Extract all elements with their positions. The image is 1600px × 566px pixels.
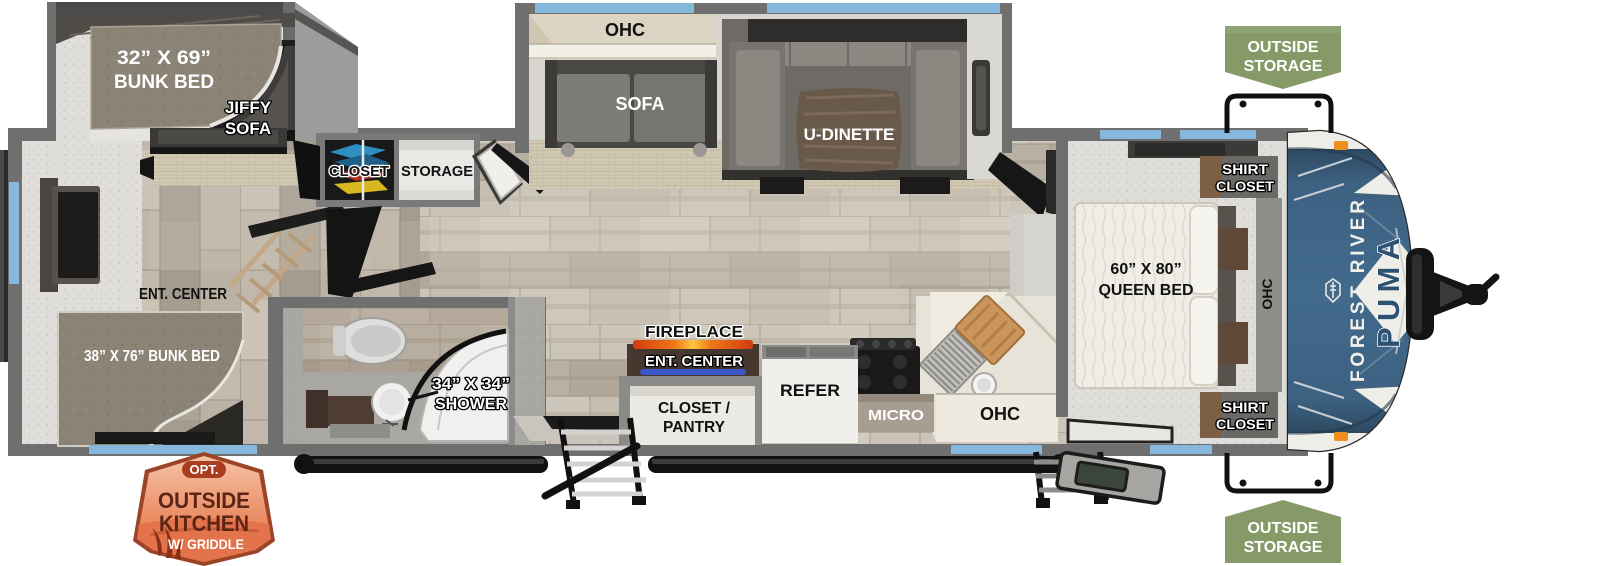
svg-text:REFER: REFER — [780, 381, 840, 400]
svg-text:OUTSIDE: OUTSIDE — [1247, 520, 1318, 537]
svg-text:OHC: OHC — [1259, 278, 1275, 309]
svg-text:FOREST RIVER: FOREST RIVER — [1348, 200, 1369, 382]
svg-text:CLOSET: CLOSET — [1216, 178, 1274, 194]
svg-text:QUEEN BED: QUEEN BED — [1098, 282, 1193, 299]
svg-text:KITCHEN: KITCHEN — [159, 511, 249, 536]
svg-text:STORAGE: STORAGE — [1244, 58, 1323, 75]
svg-text:OPT.: OPT. — [190, 462, 219, 477]
svg-text:BUNK BED: BUNK BED — [114, 72, 214, 93]
svg-text:60” X 80”: 60” X 80” — [1110, 261, 1181, 278]
svg-text:OUTSIDE: OUTSIDE — [158, 488, 250, 513]
svg-text:OHC: OHC — [605, 20, 645, 40]
svg-text:ENT. CENTER: ENT. CENTER — [139, 286, 227, 303]
svg-text:SHOWER: SHOWER — [435, 396, 507, 413]
svg-text:SHIRT: SHIRT — [1222, 161, 1268, 177]
svg-text:W/ GRIDDLE: W/ GRIDDLE — [168, 536, 244, 552]
svg-text:STORAGE: STORAGE — [1244, 539, 1323, 556]
svg-text:PANTRY: PANTRY — [663, 419, 725, 436]
svg-text:CLOSET: CLOSET — [1216, 416, 1274, 432]
svg-text:SOFA: SOFA — [615, 94, 664, 114]
svg-text:38” X 76” BUNK BED: 38” X 76” BUNK BED — [84, 348, 220, 365]
svg-text:MICRO: MICRO — [868, 407, 924, 424]
svg-text:SHIRT: SHIRT — [1222, 399, 1268, 415]
svg-text:PUMA: PUMA — [1371, 238, 1406, 348]
svg-text:JIFFY: JIFFY — [225, 98, 272, 117]
svg-text:CLOSET: CLOSET — [329, 163, 389, 180]
svg-text:34” X 34”: 34” X 34” — [432, 376, 510, 393]
svg-text:OHC: OHC — [980, 404, 1020, 424]
svg-text:OUTSIDE: OUTSIDE — [1247, 39, 1318, 56]
svg-text:FIREPLACE: FIREPLACE — [645, 324, 743, 341]
svg-text:32” X 69”: 32” X 69” — [117, 48, 211, 69]
svg-text:U-DINETTE: U-DINETTE — [804, 125, 895, 144]
svg-text:SOFA: SOFA — [225, 119, 271, 138]
svg-text:STORAGE: STORAGE — [401, 163, 473, 180]
svg-text:ENT. CENTER: ENT. CENTER — [645, 353, 743, 370]
svg-text:CLOSET /: CLOSET / — [658, 400, 731, 417]
